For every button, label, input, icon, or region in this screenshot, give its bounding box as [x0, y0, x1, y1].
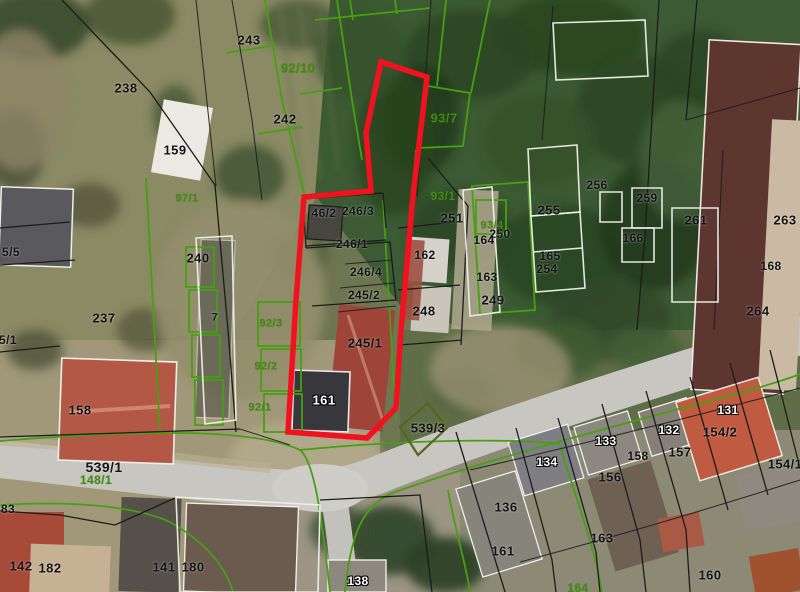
orthophoto-layer — [0, 0, 800, 592]
map-canvas[interactable]: 24323815992/1024293/797/193/146/2246/324… — [0, 0, 800, 592]
aerial-imagery — [0, 0, 800, 592]
